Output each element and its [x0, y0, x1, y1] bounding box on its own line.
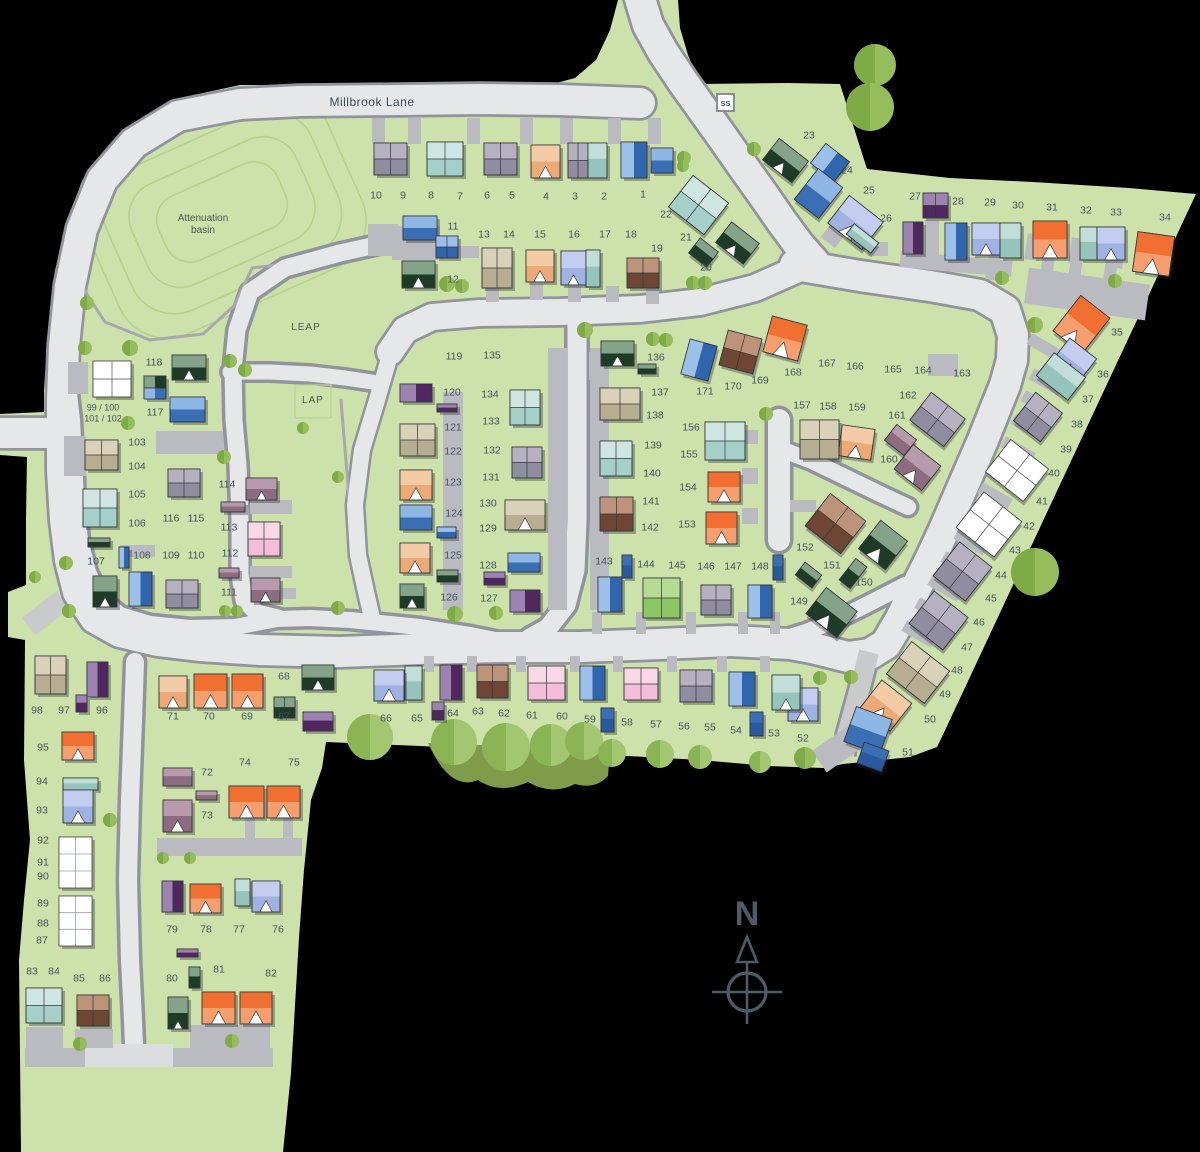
svg-text:105: 105: [128, 489, 146, 501]
svg-text:170: 170: [724, 381, 742, 393]
svg-text:93: 93: [36, 805, 48, 817]
svg-text:9: 9: [400, 190, 406, 202]
svg-text:46: 46: [973, 617, 985, 629]
svg-text:39: 39: [1060, 444, 1072, 456]
svg-text:5: 5: [509, 190, 515, 202]
svg-text:35: 35: [1111, 327, 1123, 339]
svg-text:166: 166: [846, 361, 864, 373]
svg-text:114: 114: [219, 479, 236, 491]
svg-text:38: 38: [1071, 419, 1083, 431]
svg-text:52: 52: [797, 733, 809, 745]
svg-text:31: 31: [1046, 202, 1058, 214]
svg-text:118: 118: [146, 357, 163, 369]
svg-text:33: 33: [1110, 207, 1122, 219]
svg-text:108: 108: [133, 550, 151, 562]
svg-text:16: 16: [568, 229, 580, 241]
svg-text:40: 40: [1048, 468, 1060, 480]
svg-text:138: 138: [646, 410, 664, 422]
svg-text:20: 20: [700, 262, 712, 274]
svg-text:69: 69: [241, 711, 253, 723]
svg-text:88: 88: [37, 918, 49, 930]
svg-text:83: 83: [26, 966, 38, 978]
svg-text:164: 164: [914, 365, 932, 377]
svg-text:147: 147: [724, 561, 742, 573]
svg-text:169: 169: [751, 375, 769, 387]
svg-text:95: 95: [37, 742, 49, 754]
svg-text:96: 96: [96, 705, 108, 717]
svg-text:99 / 100: 99 / 100: [87, 403, 120, 413]
svg-text:133: 133: [482, 416, 500, 428]
svg-text:54: 54: [730, 725, 742, 737]
svg-text:61: 61: [526, 710, 538, 722]
svg-text:24: 24: [841, 165, 853, 177]
svg-text:21: 21: [680, 232, 692, 244]
svg-text:49: 49: [939, 689, 951, 701]
svg-text:155: 155: [680, 449, 698, 461]
svg-text:25: 25: [863, 185, 875, 197]
svg-text:150: 150: [855, 577, 873, 589]
svg-text:84: 84: [48, 966, 60, 978]
svg-text:78: 78: [200, 924, 212, 936]
svg-text:7: 7: [457, 191, 463, 203]
svg-text:112: 112: [222, 548, 239, 560]
svg-text:158: 158: [819, 401, 837, 413]
svg-text:152: 152: [796, 542, 814, 554]
svg-text:144: 144: [637, 559, 655, 571]
svg-text:64: 64: [447, 708, 459, 720]
svg-text:149: 149: [790, 596, 808, 608]
svg-text:11: 11: [448, 221, 459, 233]
svg-text:110: 110: [188, 550, 205, 562]
svg-text:162: 162: [899, 390, 917, 402]
svg-text:134: 134: [481, 389, 499, 401]
svg-text:111: 111: [221, 587, 237, 599]
svg-text:68: 68: [278, 671, 290, 683]
svg-text:119: 119: [446, 351, 463, 363]
svg-text:139: 139: [644, 440, 662, 452]
svg-text:SS: SS: [720, 99, 730, 108]
svg-text:14: 14: [503, 229, 515, 241]
svg-text:125: 125: [444, 550, 462, 562]
svg-text:1: 1: [640, 189, 646, 201]
svg-text:81: 81: [213, 964, 225, 976]
svg-text:19: 19: [651, 243, 663, 255]
svg-text:104: 104: [128, 461, 146, 473]
svg-text:106: 106: [128, 518, 146, 530]
svg-text:37: 37: [1082, 394, 1094, 406]
svg-text:70: 70: [203, 711, 215, 723]
svg-text:123: 123: [444, 477, 462, 489]
svg-text:131: 131: [482, 472, 500, 484]
svg-text:43: 43: [1009, 545, 1021, 557]
svg-text:42: 42: [1023, 521, 1035, 533]
svg-text:13: 13: [478, 229, 490, 241]
svg-text:89: 89: [37, 898, 49, 910]
svg-text:56: 56: [678, 721, 690, 733]
svg-text:45: 45: [985, 593, 997, 605]
svg-text:163: 163: [953, 368, 971, 380]
svg-text:122: 122: [444, 446, 462, 458]
svg-text:159: 159: [848, 402, 866, 414]
svg-text:143: 143: [595, 556, 613, 568]
svg-text:127: 127: [480, 593, 498, 605]
svg-text:66: 66: [380, 713, 392, 725]
svg-text:36: 36: [1097, 369, 1109, 381]
svg-text:157: 157: [793, 400, 811, 412]
svg-text:135: 135: [483, 350, 501, 362]
svg-text:59: 59: [584, 714, 596, 726]
svg-text:41: 41: [1036, 496, 1048, 508]
svg-text:26: 26: [880, 213, 892, 225]
svg-text:121: 121: [444, 422, 462, 434]
svg-text:17: 17: [599, 229, 611, 241]
svg-text:146: 146: [697, 561, 715, 573]
svg-text:101 / 102: 101 / 102: [84, 414, 122, 424]
svg-text:2: 2: [601, 191, 607, 203]
svg-text:72: 72: [201, 767, 213, 779]
svg-text:18: 18: [625, 229, 637, 241]
svg-text:148: 148: [751, 561, 769, 573]
svg-text:75: 75: [288, 757, 300, 769]
svg-text:109: 109: [162, 550, 180, 562]
svg-text:32: 32: [1080, 205, 1092, 217]
svg-text:6: 6: [484, 190, 490, 202]
svg-text:116: 116: [163, 513, 180, 525]
svg-text:76: 76: [272, 924, 284, 936]
svg-text:27: 27: [909, 191, 921, 203]
svg-text:161: 161: [888, 410, 906, 422]
svg-text:60: 60: [556, 711, 568, 723]
svg-text:142: 142: [641, 522, 659, 534]
svg-text:128: 128: [479, 560, 497, 572]
svg-text:62: 62: [498, 708, 510, 720]
svg-text:51: 51: [902, 747, 914, 759]
svg-text:74: 74: [239, 757, 251, 769]
svg-text:LAP: LAP: [302, 395, 324, 406]
svg-text:77: 77: [233, 924, 245, 936]
svg-text:137: 137: [651, 387, 669, 399]
svg-text:55: 55: [704, 722, 716, 734]
svg-text:58: 58: [621, 717, 633, 729]
svg-text:73: 73: [201, 810, 213, 822]
svg-text:12: 12: [447, 274, 459, 286]
svg-text:154: 154: [679, 482, 697, 494]
svg-text:132: 132: [483, 445, 501, 457]
svg-text:8: 8: [428, 190, 434, 202]
svg-text:basin: basin: [191, 225, 215, 236]
svg-text:LEAP: LEAP: [291, 322, 321, 333]
svg-text:10: 10: [370, 190, 382, 202]
svg-text:15: 15: [534, 229, 546, 241]
svg-text:23: 23: [803, 130, 815, 142]
svg-text:168: 168: [784, 367, 802, 379]
svg-text:30: 30: [1012, 200, 1024, 212]
svg-text:153: 153: [678, 519, 696, 531]
svg-text:Attenuation: Attenuation: [178, 213, 229, 224]
svg-text:N: N: [735, 895, 760, 933]
svg-text:115: 115: [188, 513, 205, 525]
svg-text:129: 129: [479, 523, 497, 535]
svg-text:53: 53: [768, 728, 780, 740]
svg-text:165: 165: [884, 364, 902, 376]
svg-text:Millbrook Lane: Millbrook Lane: [329, 95, 414, 109]
svg-text:140: 140: [643, 468, 661, 480]
svg-text:3: 3: [572, 191, 578, 203]
svg-text:80: 80: [166, 973, 178, 985]
svg-text:28: 28: [952, 196, 964, 208]
svg-text:90: 90: [37, 871, 49, 883]
svg-text:82: 82: [265, 968, 277, 980]
svg-text:71: 71: [167, 711, 179, 723]
svg-text:136: 136: [647, 352, 665, 364]
svg-text:145: 145: [668, 560, 686, 572]
svg-text:130: 130: [479, 498, 497, 510]
svg-text:117: 117: [147, 407, 164, 419]
svg-text:92: 92: [37, 835, 49, 847]
svg-text:87: 87: [36, 935, 48, 947]
svg-text:151: 151: [823, 560, 841, 572]
svg-text:29: 29: [984, 197, 996, 209]
svg-text:57: 57: [650, 719, 662, 731]
svg-text:141: 141: [642, 496, 660, 508]
svg-text:91: 91: [37, 857, 49, 869]
svg-text:50: 50: [924, 714, 936, 726]
svg-text:94: 94: [36, 776, 48, 788]
svg-text:85: 85: [73, 973, 85, 985]
svg-text:126: 126: [440, 592, 458, 604]
svg-text:79: 79: [166, 924, 178, 936]
svg-text:98: 98: [31, 705, 43, 717]
svg-text:156: 156: [682, 422, 700, 434]
svg-text:86: 86: [99, 973, 111, 985]
svg-text:34: 34: [1159, 212, 1171, 224]
svg-text:4: 4: [543, 191, 549, 203]
svg-text:67: 67: [278, 711, 290, 723]
svg-text:63: 63: [472, 706, 484, 718]
svg-text:160: 160: [880, 454, 898, 466]
svg-text:113: 113: [221, 522, 238, 534]
svg-text:167: 167: [818, 358, 836, 370]
svg-text:44: 44: [995, 570, 1007, 582]
svg-text:97: 97: [58, 705, 70, 717]
svg-text:120: 120: [443, 387, 461, 399]
svg-text:107: 107: [87, 556, 105, 568]
svg-text:124: 124: [445, 508, 463, 520]
svg-text:171: 171: [696, 386, 714, 398]
svg-text:65: 65: [411, 713, 423, 725]
svg-text:22: 22: [660, 209, 672, 221]
svg-text:48: 48: [951, 665, 963, 677]
svg-text:47: 47: [961, 642, 973, 654]
svg-text:103: 103: [128, 437, 146, 449]
